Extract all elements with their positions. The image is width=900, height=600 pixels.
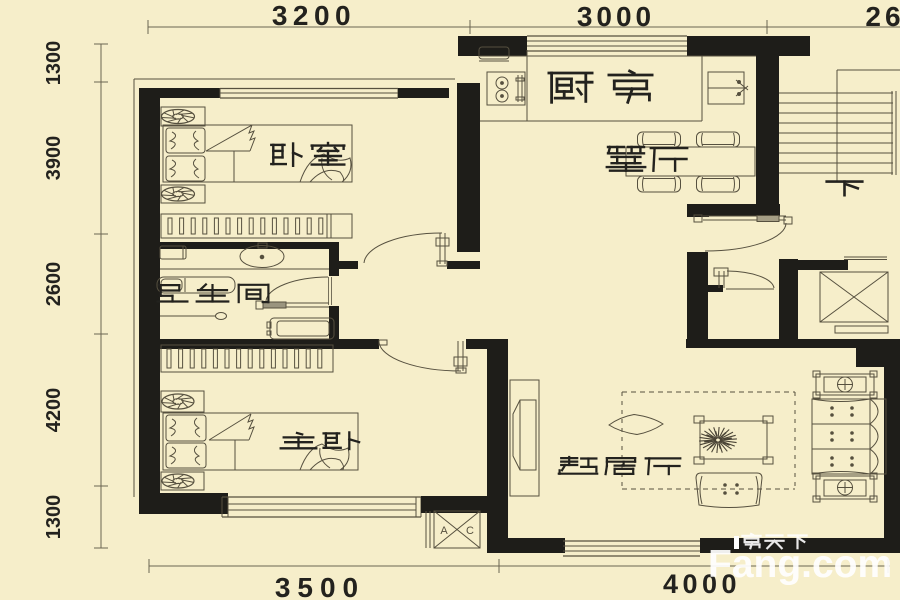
svg-text:A: A [440,525,448,537]
svg-text:26: 26 [865,1,900,32]
svg-text:3000: 3000 [577,1,655,32]
svg-text:2600: 2600 [43,262,65,307]
svg-text:1300: 1300 [43,495,65,540]
svg-text:3900: 3900 [43,136,65,181]
svg-text:3500: 3500 [275,572,365,600]
svg-text:4200: 4200 [43,388,65,433]
svg-text:C: C [466,525,474,537]
svg-text:Fang.com: Fang.com [708,543,892,586]
svg-text:1300: 1300 [43,41,65,86]
svg-text:3200: 3200 [272,0,356,31]
